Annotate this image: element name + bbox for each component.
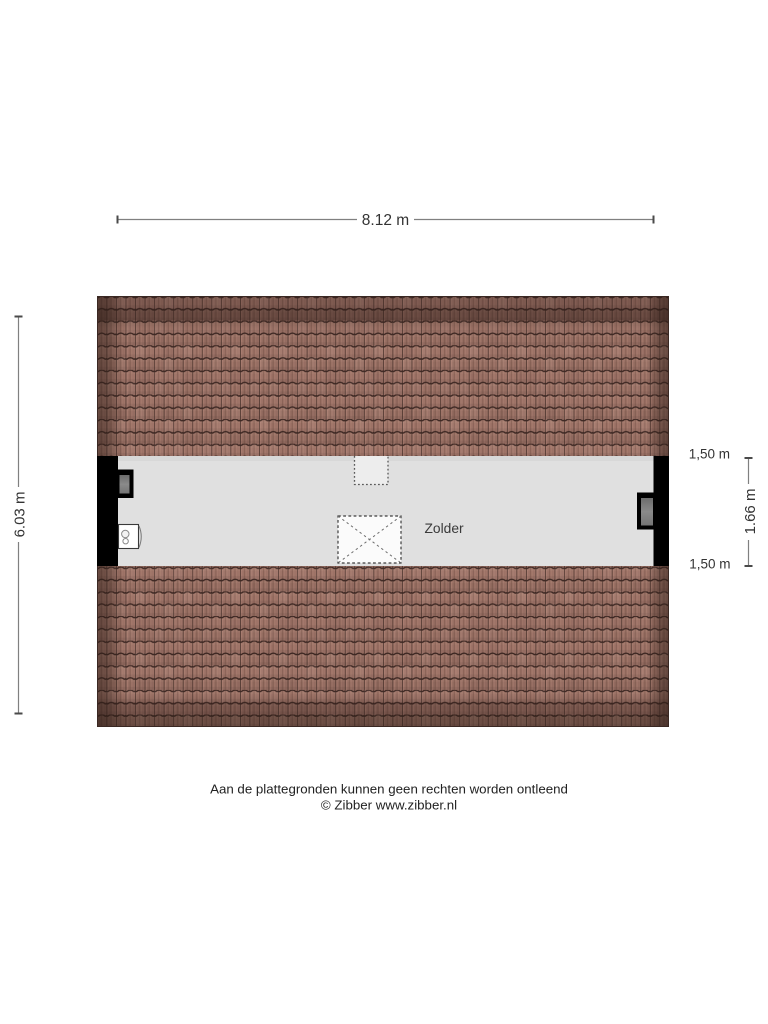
svg-text:1,50 m: 1,50 m <box>689 556 730 571</box>
svg-text:Zolder: Zolder <box>425 521 465 536</box>
svg-text:Aan de plattegronden kunnen ge: Aan de plattegronden kunnen geen rechten… <box>210 782 568 797</box>
svg-text:1.66 m: 1.66 m <box>742 489 759 535</box>
svg-text:6.03 m: 6.03 m <box>12 492 29 538</box>
svg-text:© Zibber www.zibber.nl: © Zibber www.zibber.nl <box>321 798 457 813</box>
svg-text:1,50 m: 1,50 m <box>689 447 730 462</box>
svg-text:8.12 m: 8.12 m <box>362 212 409 229</box>
